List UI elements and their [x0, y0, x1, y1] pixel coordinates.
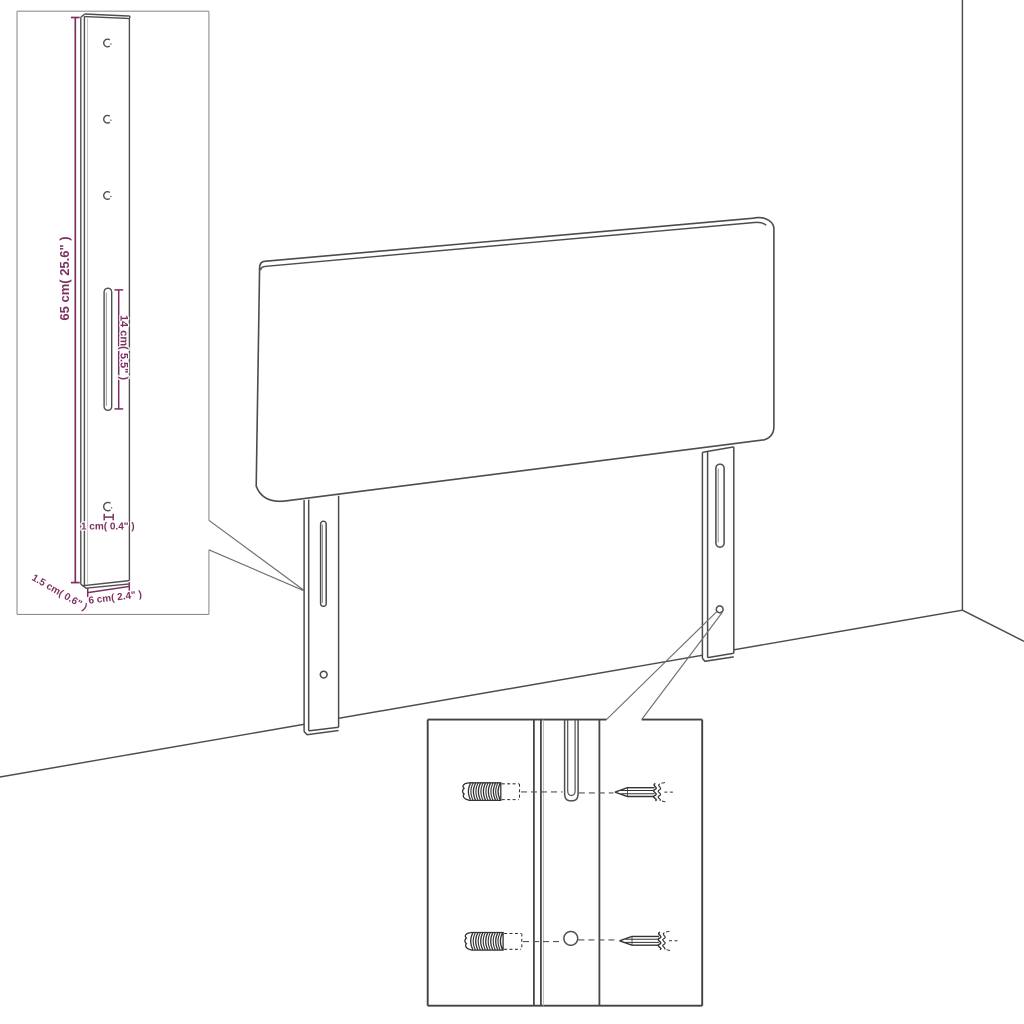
svg-text:1 cm( 0.4" ): 1 cm( 0.4" ): [81, 522, 135, 533]
svg-text:65 cm( 25.6" ): 65 cm( 25.6" ): [57, 236, 72, 320]
svg-text:14 cm( 5.5" ): 14 cm( 5.5" ): [118, 315, 130, 380]
